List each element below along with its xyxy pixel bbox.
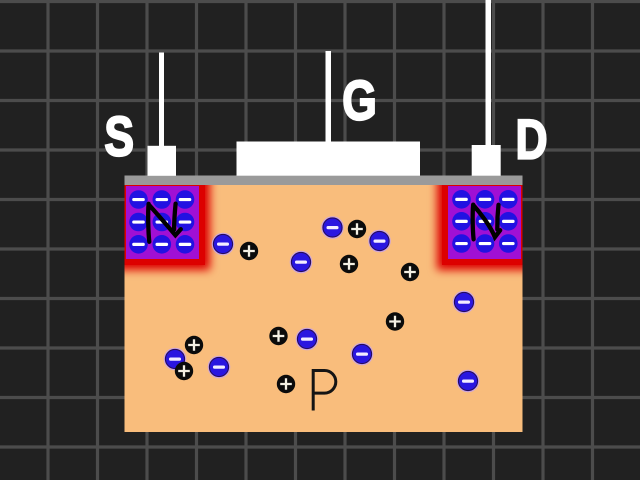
svg-text:S: S: [104, 106, 134, 168]
svg-text:D: D: [515, 109, 547, 171]
svg-text:G: G: [342, 70, 377, 132]
